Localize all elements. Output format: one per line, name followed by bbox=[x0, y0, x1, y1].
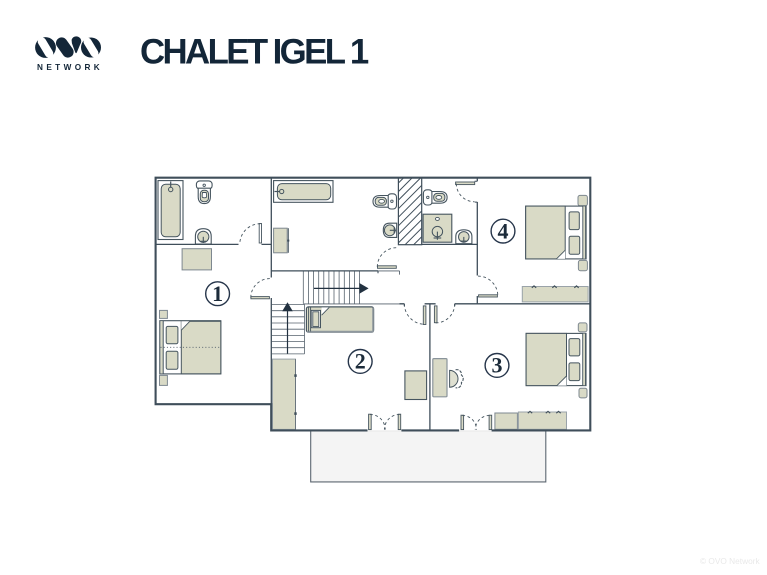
svg-text:1: 1 bbox=[212, 281, 223, 306]
svg-text:© OVO Network: © OVO Network bbox=[700, 556, 760, 566]
svg-text:CHALET IGEL 1: CHALET IGEL 1 bbox=[140, 33, 369, 72]
svg-text:NETWORK: NETWORK bbox=[37, 63, 103, 72]
svg-text:2: 2 bbox=[355, 349, 366, 374]
svg-text:3: 3 bbox=[492, 353, 503, 378]
svg-text:4: 4 bbox=[498, 218, 509, 243]
